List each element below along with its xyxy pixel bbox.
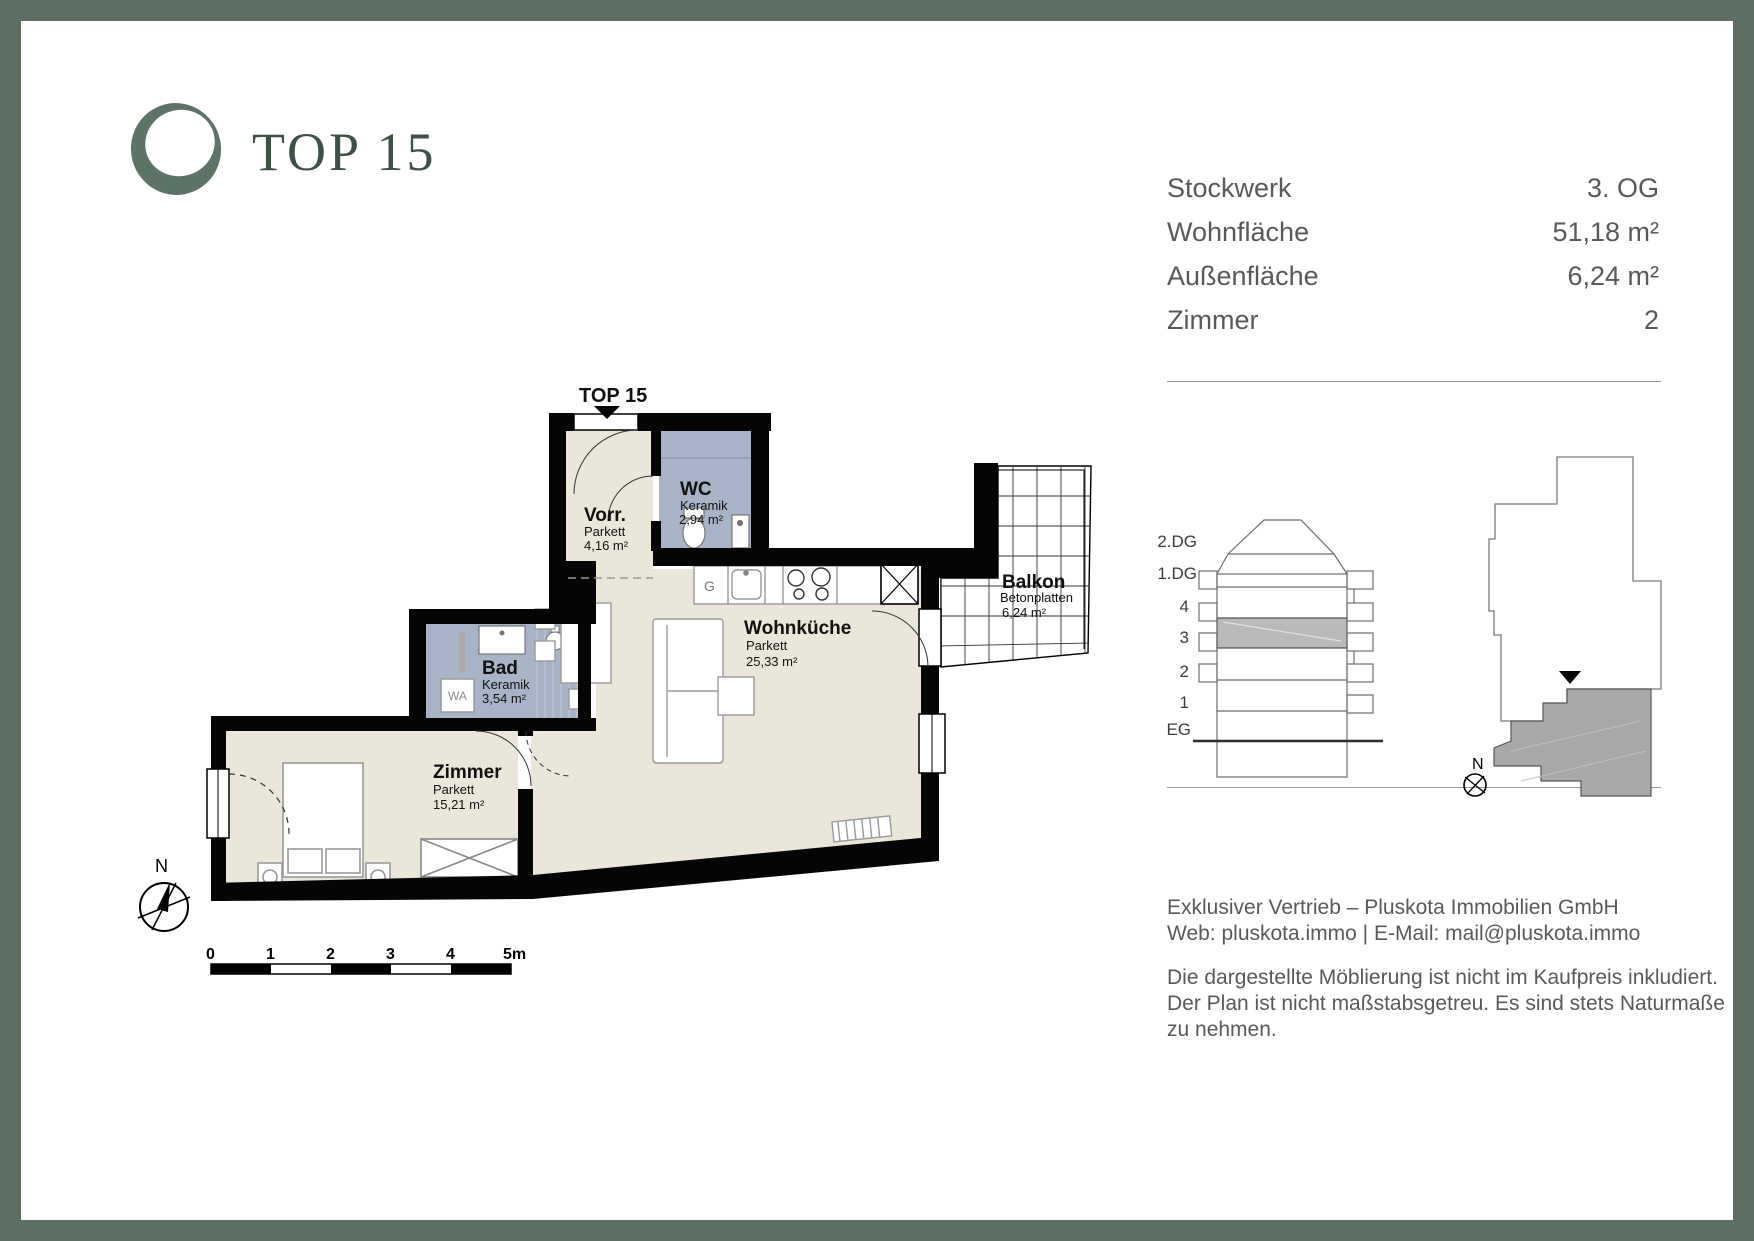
room-area: 15,21 m² — [433, 797, 485, 812]
room-name-vorraum: Vorr. — [584, 505, 626, 526]
plan-compass-icon: N — [138, 856, 190, 931]
room-name-zimmer: Zimmer — [433, 762, 502, 783]
scale-tick: 3 — [386, 946, 395, 963]
section-floor-label: 2 — [1180, 662, 1189, 681]
scale-bar: 0 1 2 3 4 5m — [206, 946, 526, 974]
entrance-unit-label: TOP 15 — [579, 385, 647, 407]
room-area: 3,54 m² — [482, 691, 527, 706]
site-north-label: N — [1472, 756, 1484, 773]
room-area: 6,24 m² — [1002, 605, 1047, 620]
room-material: Betonplatten — [1000, 590, 1073, 605]
site-plan: N — [1464, 457, 1661, 796]
site-compass-icon: N — [1464, 756, 1486, 796]
scale-tick: 0 — [206, 946, 215, 963]
section-floor-label: 1.DG — [1157, 564, 1197, 583]
scale-tick: 4 — [446, 946, 455, 963]
compass-north-label: N — [155, 856, 168, 876]
room-material: Parkett — [746, 638, 788, 653]
page: TOP 15 Stockwerk 3. OG Wohnfläche 51,18 … — [0, 0, 1754, 1241]
floorplan-canvas: TOP 15 Vorr. Parkett 4,16 m² WC Keramik … — [21, 21, 1754, 1241]
scale-tick: 2 — [326, 946, 335, 963]
room-material: Parkett — [433, 782, 475, 797]
section-floor-label: 2.DG — [1157, 532, 1197, 551]
scale-tick: 1 — [266, 946, 275, 963]
section-floor-label: 1 — [1180, 693, 1189, 712]
room-name-wohnkueche: Wohnküche — [744, 618, 851, 639]
section-floor-label: 3 — [1180, 628, 1189, 647]
room-material: Parkett — [584, 524, 626, 539]
washer-label: WA — [448, 689, 467, 703]
room-area: 2,94 m² — [679, 512, 724, 527]
scale-tick: 5m — [503, 946, 526, 963]
room-material: Keramik — [482, 677, 530, 692]
section-floor-label: EG — [1166, 720, 1191, 739]
dishwasher-label: G — [704, 578, 715, 594]
room-name-wc: WC — [680, 479, 712, 500]
room-name-bad: Bad — [482, 658, 518, 679]
section-diagram: 2.DG 1.DG 4 3 2 1 EG — [1157, 520, 1383, 777]
room-material: Keramik — [680, 498, 728, 513]
kitchen-counter — [694, 564, 918, 604]
section-floor-label: 4 — [1180, 597, 1189, 616]
room-area: 4,16 m² — [584, 538, 629, 553]
room-area: 25,33 m² — [746, 654, 798, 669]
